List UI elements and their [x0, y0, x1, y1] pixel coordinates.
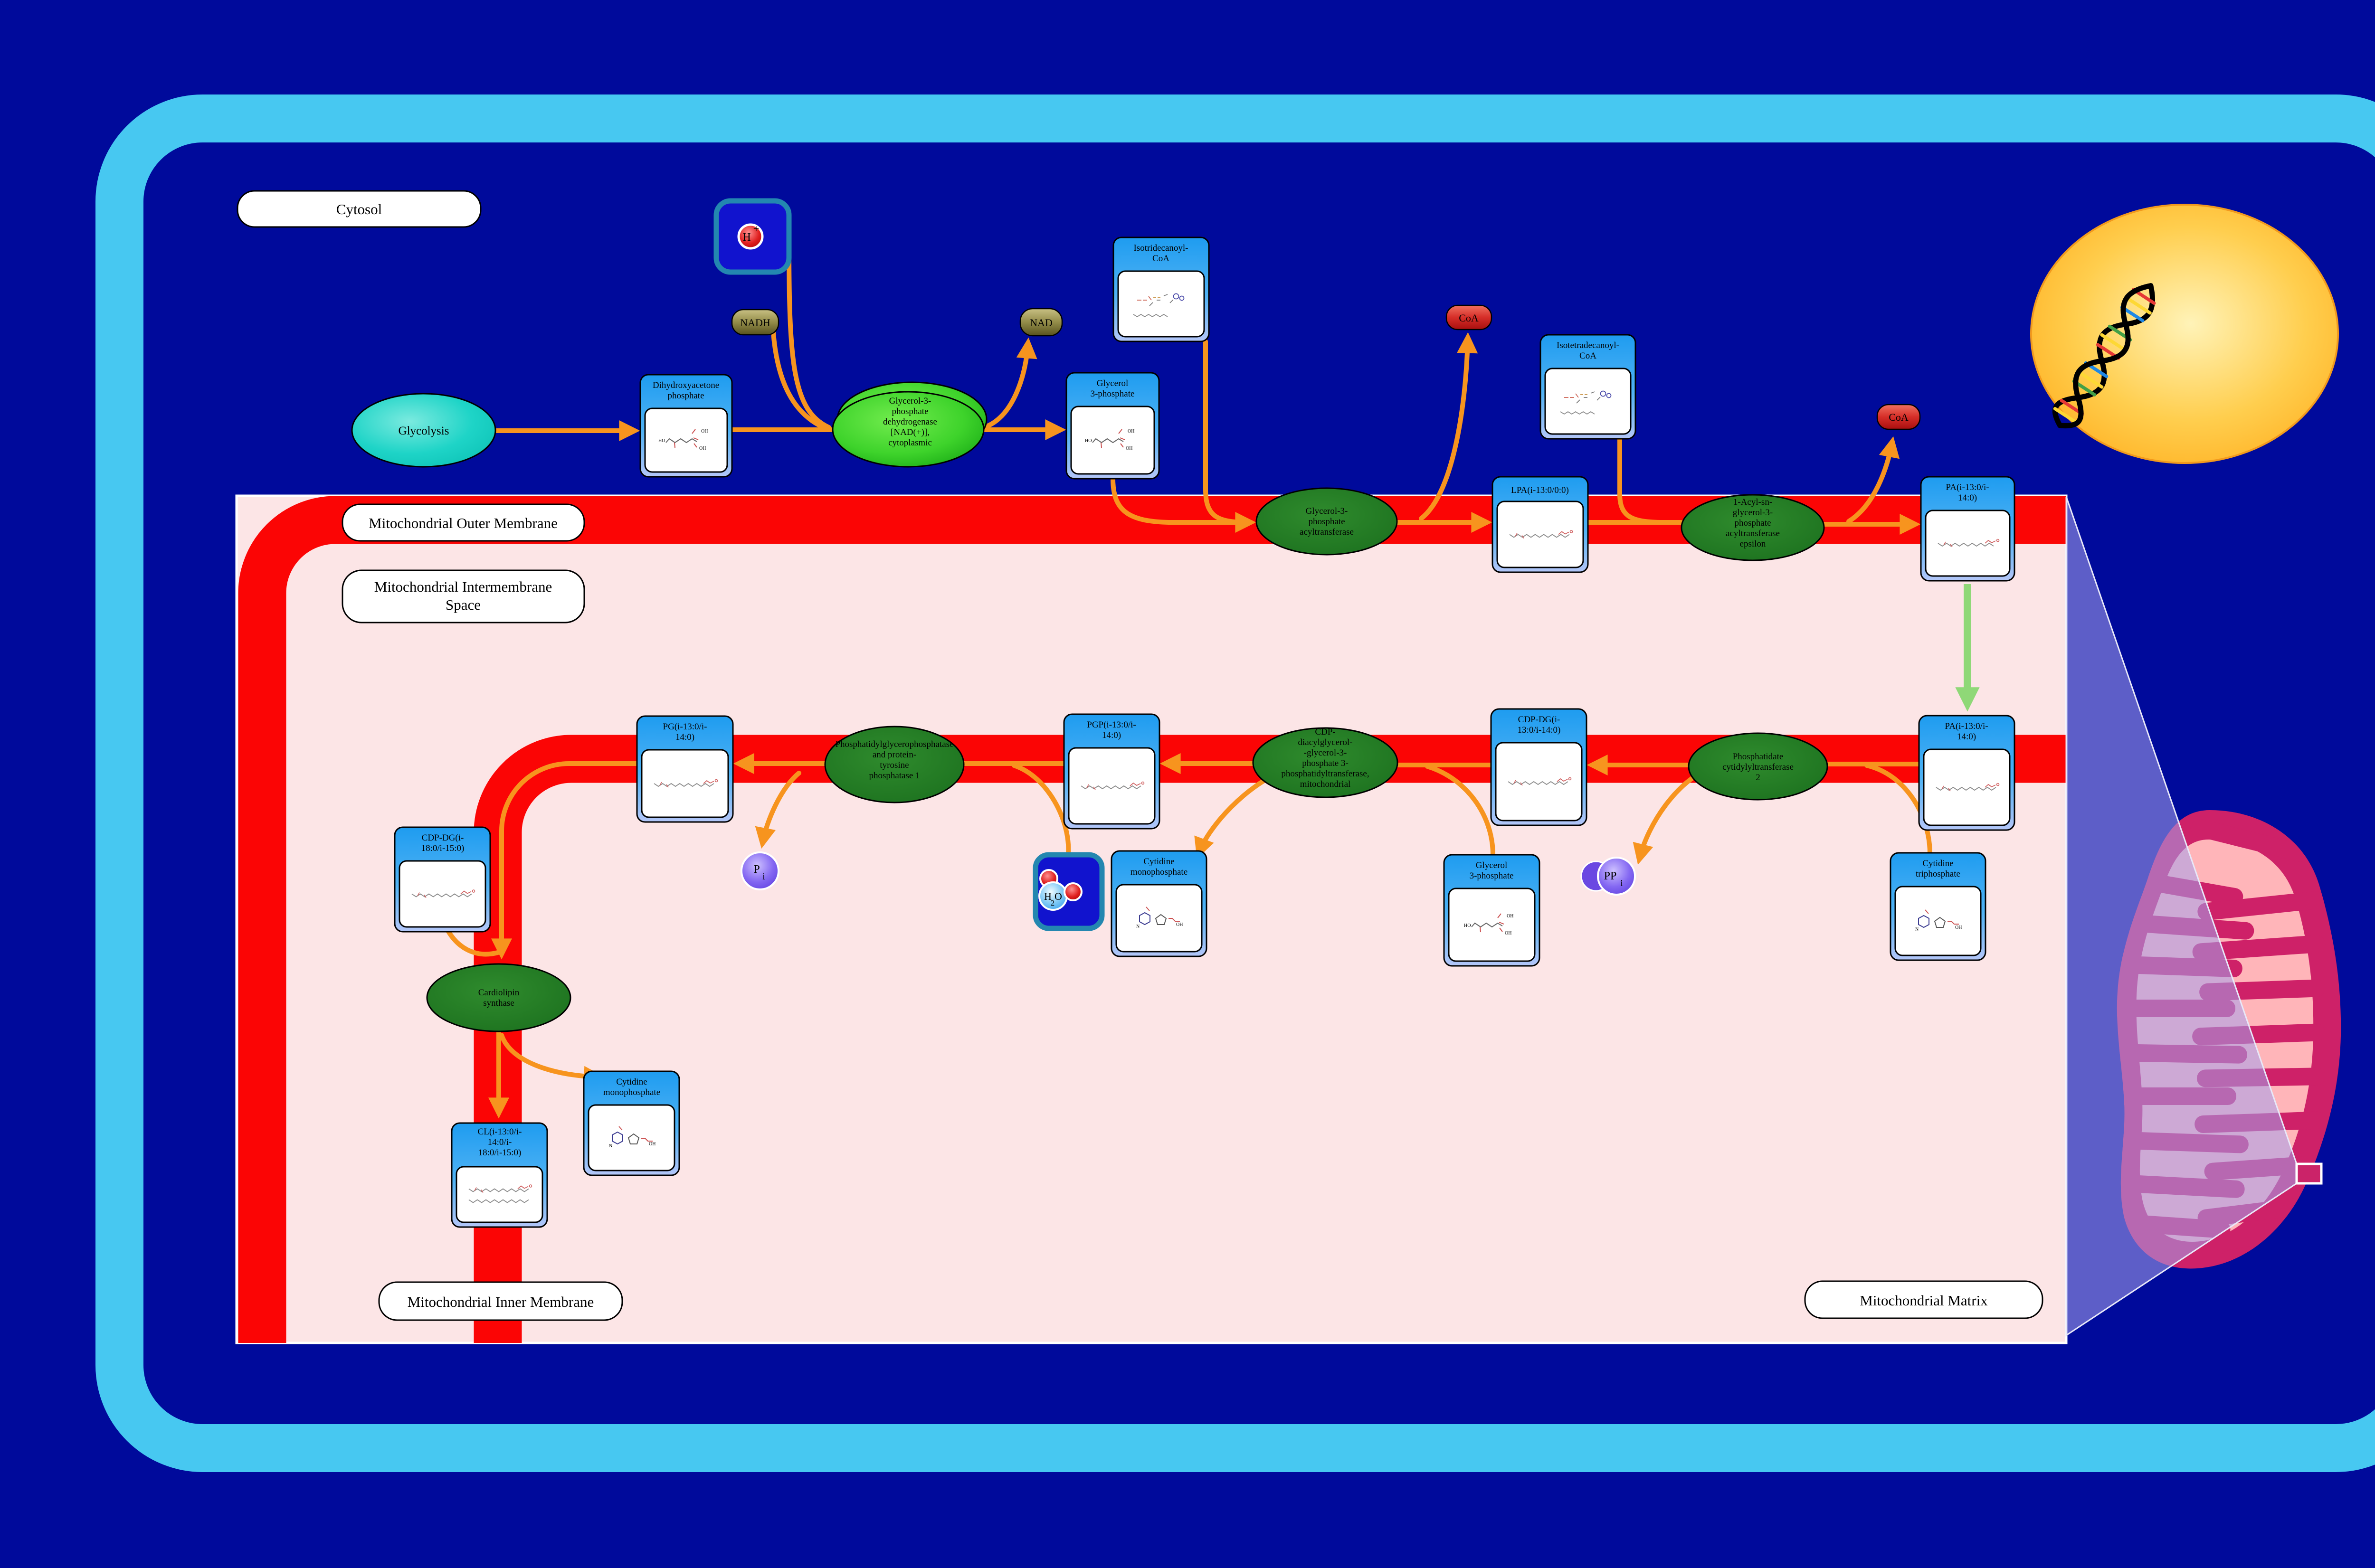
svg-text:OH: OH	[1507, 914, 1513, 919]
svg-text:2: 2	[1756, 773, 1760, 783]
svg-text:phosphate: phosphate	[667, 391, 704, 401]
svg-text:OH: OH	[1505, 931, 1511, 936]
svg-text:OH: OH	[1126, 446, 1132, 451]
svg-text:Phosphatidate: Phosphatidate	[1733, 752, 1784, 762]
svg-text:CoA: CoA	[1459, 312, 1479, 324]
svg-text:Glycerol-3-: Glycerol-3-	[1306, 506, 1348, 516]
svg-text:dehydrogenase: dehydrogenase	[883, 417, 937, 427]
svg-text:CL(i-13:0/i-: CL(i-13:0/i-	[478, 1127, 522, 1137]
svg-text:PA(i-13:0/i-: PA(i-13:0/i-	[1946, 482, 1989, 492]
svg-text:Cytidine: Cytidine	[616, 1077, 647, 1087]
svg-text:-glycerol-3-: -glycerol-3-	[1304, 748, 1347, 758]
svg-text:phosphatase 1: phosphatase 1	[869, 771, 920, 781]
svg-text:HO: HO	[658, 438, 665, 444]
svg-text:18:0/i-15:0): 18:0/i-15:0)	[421, 843, 465, 853]
svg-text:Glycerol: Glycerol	[1097, 378, 1128, 388]
svg-text:Mitochondrial Matrix: Mitochondrial Matrix	[1860, 1292, 1988, 1309]
svg-text:Space: Space	[446, 596, 481, 613]
svg-text:phosphate: phosphate	[1734, 518, 1771, 528]
svg-text:P: P	[753, 863, 760, 876]
svg-text:CoA: CoA	[1889, 411, 1909, 423]
svg-text:14:0): 14:0)	[1958, 493, 1977, 503]
svg-text:N: N	[1915, 927, 1919, 932]
svg-text:N: N	[609, 1143, 612, 1149]
svg-text:OH: OH	[1955, 925, 1962, 930]
svg-text:and protein-: and protein-	[873, 750, 916, 760]
svg-text:14:0): 14:0)	[675, 732, 694, 742]
svg-text:2: 2	[1051, 898, 1055, 907]
svg-text:OH: OH	[1176, 922, 1183, 927]
svg-text:Cytosol: Cytosol	[336, 201, 382, 217]
svg-text:14:0): 14:0)	[1957, 732, 1976, 742]
svg-text:monophosphate: monophosphate	[1130, 867, 1187, 877]
svg-text:glycerol-3-: glycerol-3-	[1733, 508, 1773, 518]
svg-text:OH: OH	[699, 446, 706, 451]
svg-text:i: i	[1620, 878, 1623, 888]
svg-text:Cardiolipin: Cardiolipin	[478, 988, 520, 998]
svg-text:PA(i-13:0/i-: PA(i-13:0/i-	[1945, 721, 1988, 731]
svg-text:LPA(i-13:0/0:0): LPA(i-13:0/0:0)	[1511, 485, 1569, 495]
svg-text:triphosphate: triphosphate	[1916, 869, 1960, 879]
svg-text:H: H	[742, 231, 750, 244]
svg-text:phosphate: phosphate	[892, 406, 928, 416]
svg-text:CDP-DG(i-: CDP-DG(i-	[422, 833, 464, 843]
svg-text:Glycolysis: Glycolysis	[399, 425, 449, 437]
svg-text:HO: HO	[1085, 438, 1092, 444]
svg-text:NADH: NADH	[740, 317, 770, 329]
svg-text:Isotridecanoyl-: Isotridecanoyl-	[1133, 243, 1188, 253]
svg-text:phosphate 3-: phosphate 3-	[1302, 758, 1349, 768]
svg-text:OH: OH	[649, 1142, 655, 1147]
svg-text:[NAD(+)],: [NAD(+)],	[891, 427, 930, 437]
svg-text:13:0/i-14:0): 13:0/i-14:0)	[1518, 725, 1561, 735]
svg-text:acyltransferase: acyltransferase	[1726, 529, 1780, 538]
svg-text:3-phosphate: 3-phosphate	[1091, 389, 1135, 399]
svg-text:cytidylyltransferase: cytidylyltransferase	[1722, 762, 1794, 772]
svg-text:cytoplasmic: cytoplasmic	[888, 438, 932, 448]
svg-text:Mitochondrial Inner Membrane: Mitochondrial Inner Membrane	[408, 1294, 594, 1310]
svg-text:1-Acyl-sn-: 1-Acyl-sn-	[1733, 497, 1772, 507]
svg-text:Cytidine: Cytidine	[1922, 859, 1953, 869]
svg-text:Isotetradecanoyl-: Isotetradecanoyl-	[1557, 340, 1619, 350]
svg-text:14:0/i-: 14:0/i-	[488, 1137, 512, 1147]
svg-text:CDP-DG(i-: CDP-DG(i-	[1518, 715, 1560, 725]
svg-text:Phosphatidylglycerophosphatase: Phosphatidylglycerophosphatase	[835, 739, 953, 749]
svg-text:epsilon: epsilon	[1740, 539, 1766, 549]
svg-text:PG(i-13:0/i-: PG(i-13:0/i-	[663, 722, 707, 732]
svg-text:Cytidine: Cytidine	[1143, 857, 1174, 867]
svg-text:OH: OH	[701, 429, 708, 434]
svg-text:18:0/i-15:0): 18:0/i-15:0)	[478, 1148, 522, 1158]
svg-text:N: N	[1136, 924, 1140, 929]
svg-text:3-phosphate: 3-phosphate	[1470, 871, 1514, 881]
svg-text:PGP(i-13:0/i-: PGP(i-13:0/i-	[1087, 720, 1136, 730]
svg-text:Mitochondrial Outer Membrane: Mitochondrial Outer Membrane	[369, 515, 558, 531]
svg-text:i: i	[762, 871, 765, 882]
svg-text:phosphate: phosphate	[1308, 517, 1345, 527]
svg-text:14:0): 14:0)	[1102, 730, 1121, 740]
svg-text:PP: PP	[1604, 870, 1617, 882]
svg-text:CDP-: CDP-	[1315, 727, 1335, 737]
svg-text:Glycerol-3-: Glycerol-3-	[889, 396, 931, 406]
svg-text:acyltransferase: acyltransferase	[1300, 527, 1354, 537]
svg-text:+: +	[753, 223, 759, 235]
svg-text:OH: OH	[1128, 429, 1134, 434]
svg-text:diacylglycerol-: diacylglycerol-	[1298, 737, 1352, 747]
svg-text:O: O	[1054, 890, 1062, 902]
svg-text:HO: HO	[1464, 923, 1471, 928]
svg-text:phosphatidyltransferase,: phosphatidyltransferase,	[1281, 769, 1369, 779]
svg-text:Glycerol: Glycerol	[1476, 860, 1507, 870]
svg-text:NAD: NAD	[1030, 317, 1053, 329]
svg-text:tyrosine: tyrosine	[880, 760, 909, 770]
svg-text:CoA: CoA	[1152, 254, 1169, 264]
svg-text:monophosphate: monophosphate	[603, 1087, 660, 1097]
svg-text:mitochondrial: mitochondrial	[1300, 779, 1351, 789]
svg-text:Dihydroxyacetone: Dihydroxyacetone	[653, 380, 719, 390]
svg-text:Mitochondrial Intermembrane: Mitochondrial Intermembrane	[374, 578, 552, 595]
svg-text:CoA: CoA	[1579, 351, 1596, 361]
svg-text:synthase: synthase	[483, 998, 514, 1008]
